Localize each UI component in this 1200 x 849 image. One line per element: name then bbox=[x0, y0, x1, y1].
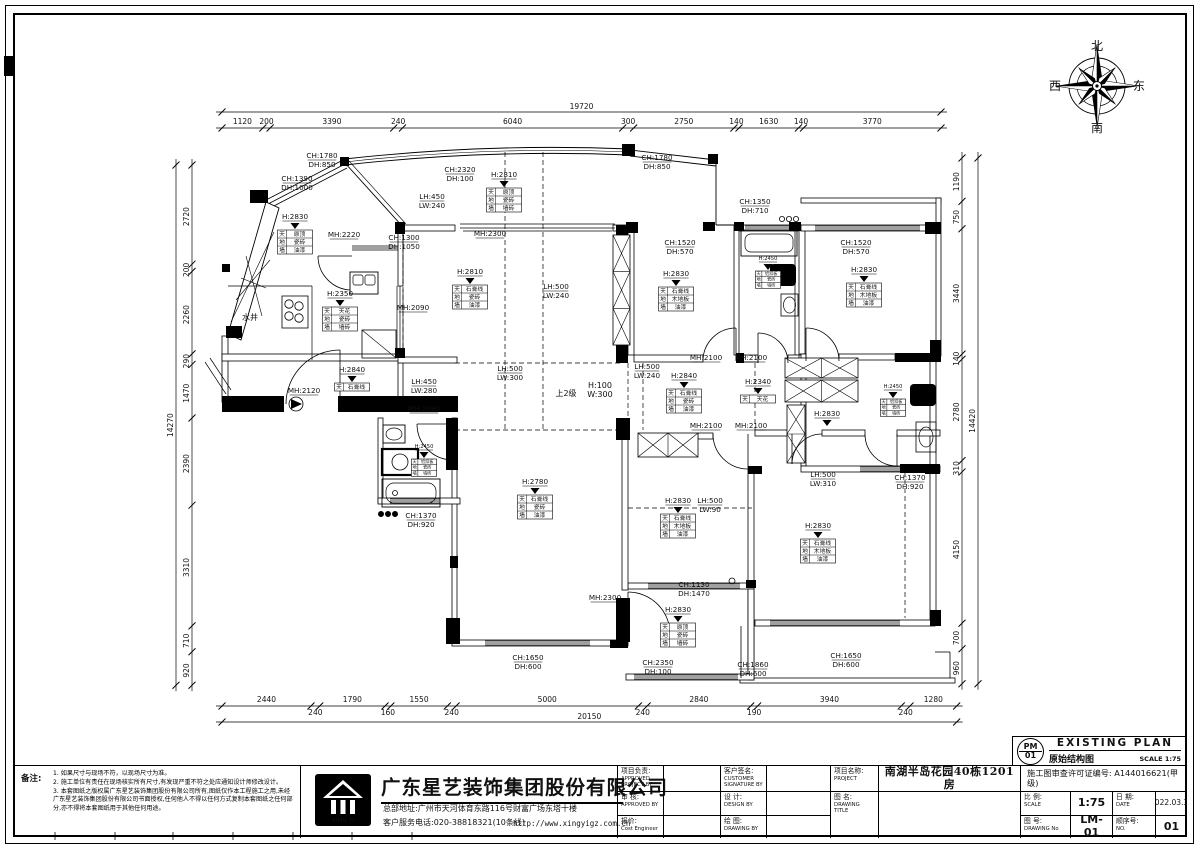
company-phone: 客户服务电话:020-38818321(10条线) bbox=[383, 817, 525, 828]
finish-value: 瓷砖 bbox=[677, 631, 689, 639]
plan-label: CH:1860 bbox=[737, 660, 769, 669]
plan-label: CH:1650 bbox=[512, 653, 544, 662]
dim-value: 920 bbox=[182, 663, 191, 678]
room-height-label: H:2450 bbox=[415, 444, 434, 450]
dim-value: 190 bbox=[747, 708, 762, 717]
room-height-label: H:2830 bbox=[814, 409, 841, 418]
dim-value: 2780 bbox=[952, 402, 961, 421]
dim-value: 310 bbox=[952, 461, 961, 476]
finish-key: 墙 bbox=[454, 301, 460, 309]
plan-label: DH:570 bbox=[842, 247, 870, 256]
dim-value: 3770 bbox=[863, 117, 882, 126]
field-scale: 比 例: SCALE bbox=[1020, 791, 1070, 815]
dim-value: 1190 bbox=[952, 172, 961, 191]
field-design-value bbox=[766, 791, 830, 815]
room-height-label: H:2840 bbox=[339, 365, 366, 374]
field-customer-value bbox=[766, 766, 830, 791]
field-cost-value bbox=[663, 815, 720, 838]
finish-key: 墙 bbox=[488, 204, 494, 212]
dim-total-left: 14270 bbox=[166, 413, 175, 437]
dim-value: 1630 bbox=[759, 117, 778, 126]
drawing-title-strip: PM 01 EXISTING PLAN 原始结构图 SCALE 1:75 bbox=[1012, 736, 1185, 765]
dim-value: 140 bbox=[729, 117, 744, 126]
finish-key: 墙 bbox=[324, 323, 330, 331]
dim-value: 1280 bbox=[924, 695, 943, 704]
plan-label: CH:1370 bbox=[894, 473, 926, 482]
finish-value: 瓷砖 bbox=[469, 293, 481, 301]
compass-e: 东 bbox=[1133, 79, 1145, 93]
finish-key: 天 bbox=[802, 540, 808, 547]
finish-value: 油漆 bbox=[683, 405, 695, 413]
finish-key: 地 bbox=[324, 315, 330, 323]
seq-no-value: 01 bbox=[1155, 815, 1187, 838]
finish-value: 原顶 bbox=[503, 189, 515, 196]
finish-key: 天 bbox=[279, 231, 285, 238]
plan-label: MH:2090 bbox=[397, 303, 430, 312]
dim-value: 1790 bbox=[343, 695, 362, 704]
dim-total-bottom: 20150 bbox=[577, 712, 601, 721]
finish-value: 石膏线 bbox=[680, 389, 698, 397]
plan-label: DH:850 bbox=[643, 162, 671, 171]
finish-value: 天花 bbox=[757, 395, 769, 403]
finish-key: 地 bbox=[413, 464, 417, 470]
plan-label: CH:1370 bbox=[405, 511, 437, 520]
finish-value: 油漆 bbox=[817, 555, 829, 563]
dim-value: 2390 bbox=[182, 454, 191, 473]
finish-key: 地 bbox=[660, 295, 666, 303]
dim-value: 960 bbox=[952, 661, 961, 676]
field-design: 设 计: DESIGN BY bbox=[720, 791, 766, 815]
plan-label: MH:2100 bbox=[735, 421, 768, 430]
finish-key: 天 bbox=[757, 271, 761, 276]
finish-value: 油漆 bbox=[675, 303, 687, 311]
plan-label: CH:1780 bbox=[641, 153, 673, 162]
finish-value: 瓷砖 bbox=[767, 276, 775, 282]
plan-label: DH:570 bbox=[666, 247, 694, 256]
finish-value: 瓷砖 bbox=[892, 404, 900, 410]
finish-value: 石膏线 bbox=[466, 285, 484, 293]
dim-value: 4150 bbox=[952, 540, 961, 559]
finish-key: 墙 bbox=[662, 530, 668, 538]
room-height-label: H:2830 bbox=[805, 521, 832, 530]
finish-value: 铝扣板 bbox=[890, 398, 902, 404]
company-name: 广东星艺装饰集团股份有限公司 bbox=[381, 771, 623, 804]
dim-value: 240 bbox=[391, 117, 406, 126]
dim-value: 2440 bbox=[257, 695, 276, 704]
finish-key: 地 bbox=[882, 404, 886, 410]
finish-value: 原顶 bbox=[677, 624, 689, 631]
field-date: 日 期: DATE bbox=[1112, 791, 1155, 815]
plan-label: DH:600 bbox=[832, 660, 860, 669]
plan-label: CH:2350 bbox=[642, 658, 674, 667]
dim-value: 3440 bbox=[952, 284, 961, 303]
field-draw-value bbox=[766, 815, 830, 838]
plan-label: LW:240 bbox=[419, 201, 446, 210]
field-drawing-no: 图 号: DRAWING No bbox=[1020, 815, 1070, 838]
field-project-name-label: 项目名称: PROJECT bbox=[830, 766, 878, 791]
finish-value: 瓷砖 bbox=[423, 464, 431, 470]
plan-label: DH:710 bbox=[741, 206, 769, 215]
plan-title-en: EXISTING PLAN bbox=[1049, 737, 1181, 751]
license-number: 施工图审查许可证编号: A144016621(甲级) bbox=[1020, 766, 1187, 791]
finish-value: 石膏线 bbox=[672, 287, 690, 295]
plan-label: CH:1300 bbox=[388, 233, 420, 242]
finish-key: 墙 bbox=[662, 639, 668, 647]
room-height-label: H:2840 bbox=[671, 371, 698, 380]
finish-key: 墙 bbox=[279, 246, 285, 254]
floor-plan-svg: 1120200339024060403002750140163014037701… bbox=[0, 0, 1200, 849]
finish-value: 石膏线 bbox=[860, 283, 878, 291]
plan-label: LW:310 bbox=[810, 479, 837, 488]
plan-label: H:100 bbox=[588, 381, 612, 390]
dim-value: 200 bbox=[182, 262, 191, 277]
plan-label: LW:90 bbox=[699, 505, 721, 514]
dim-value: 6040 bbox=[503, 117, 522, 126]
finish-key: 墙 bbox=[848, 299, 854, 307]
plan-label: LH:450 bbox=[411, 377, 437, 386]
plan-label: MH:2100 bbox=[735, 353, 768, 362]
finish-value: 木地板 bbox=[814, 547, 832, 555]
room-height-label: H:2830 bbox=[663, 269, 690, 278]
room-height-label: H:2830 bbox=[665, 496, 692, 505]
field-check: 审 核: APPROVED BY bbox=[617, 791, 663, 815]
field-check-value bbox=[663, 791, 720, 815]
plan-scale: SCALE 1:75 bbox=[1140, 755, 1182, 763]
plan-label: LH:500 bbox=[810, 470, 836, 479]
field-draw: 绘 图: DRAWING BY bbox=[720, 815, 766, 838]
room-height-label: H:2340 bbox=[745, 377, 772, 386]
field-seq-no: 顺序号: NO. bbox=[1112, 815, 1155, 838]
dim-value: 3940 bbox=[820, 695, 839, 704]
plan-label: CH:1350 bbox=[739, 197, 771, 206]
finish-key: 天 bbox=[742, 396, 748, 403]
finish-key: 天 bbox=[488, 189, 494, 196]
finish-key: 墙 bbox=[660, 303, 666, 311]
logo-caption: XING YI bbox=[332, 817, 355, 824]
dim-value: 2750 bbox=[674, 117, 693, 126]
finish-key: 地 bbox=[488, 196, 494, 204]
dim-value: 140 bbox=[794, 117, 809, 126]
plan-label: DH:850 bbox=[308, 160, 336, 169]
dim-value: 160 bbox=[381, 708, 396, 717]
finish-value: 墙砖 bbox=[503, 204, 515, 212]
finish-key: 天 bbox=[660, 288, 666, 295]
finish-key: 墙 bbox=[757, 281, 761, 287]
room-height-label: H:2780 bbox=[522, 477, 549, 486]
plan-label: DH:1470 bbox=[678, 589, 710, 598]
finish-value: 瓷砖 bbox=[683, 397, 695, 405]
plan-label: LW:280 bbox=[411, 386, 438, 395]
finish-value: 木地板 bbox=[860, 291, 878, 299]
finish-value: 木地板 bbox=[674, 522, 692, 530]
notes-title: 备注: bbox=[21, 772, 41, 784]
plan-label: MH:2300 bbox=[589, 593, 622, 602]
finish-value: 油漆 bbox=[534, 511, 546, 519]
dim-value: 290 bbox=[182, 354, 191, 369]
dim-value: 240 bbox=[308, 708, 323, 717]
plan-label: CH:1520 bbox=[664, 238, 696, 247]
compass-s: 南 bbox=[1091, 120, 1103, 135]
finish-value: 油漆 bbox=[677, 530, 689, 538]
plan-label: MH:2100 bbox=[690, 353, 723, 362]
dim-value: 750 bbox=[952, 210, 961, 225]
finish-key: 地 bbox=[519, 503, 525, 511]
finish-value: 石膏线 bbox=[814, 539, 832, 547]
drawing-title-value bbox=[878, 791, 1020, 838]
dim-value: 1120 bbox=[233, 117, 252, 126]
plan-label: MH:2300 bbox=[474, 229, 507, 238]
dim-value: 710 bbox=[182, 633, 191, 648]
plan-label: CH:1390 bbox=[281, 174, 313, 183]
finish-key: 天 bbox=[336, 384, 342, 391]
finish-key: 天 bbox=[413, 459, 417, 464]
plan-label: LW:300 bbox=[497, 373, 524, 382]
finish-key: 墙 bbox=[802, 555, 808, 563]
room-height-label: H:2450 bbox=[759, 256, 778, 262]
finish-value: 石膏线 bbox=[348, 383, 366, 391]
finish-key: 墙 bbox=[668, 405, 674, 413]
plan-label: DH:600 bbox=[514, 662, 542, 671]
plan-label: MH:2120 bbox=[288, 386, 321, 395]
plan-label: CH:1520 bbox=[840, 238, 872, 247]
drawing-sheet: 1120200339024060403002750140163014037701… bbox=[0, 0, 1200, 849]
finish-key: 地 bbox=[668, 397, 674, 405]
company-logo: XING YI bbox=[315, 774, 371, 826]
plan-label: 上2级 bbox=[555, 388, 576, 398]
finish-key: 天 bbox=[848, 284, 854, 291]
field-project-lead-value bbox=[663, 766, 720, 791]
dim-value: 700 bbox=[952, 631, 961, 646]
dim-total-top: 19720 bbox=[570, 102, 594, 111]
detail-reference-symbol: PM 01 bbox=[1017, 738, 1044, 765]
plan-label: CH:2320 bbox=[444, 165, 476, 174]
plan-label: LH:500 bbox=[634, 362, 660, 371]
dim-value: 300 bbox=[621, 117, 636, 126]
field-customer: 客户签名: CUSTOMER SIGNATURE BY bbox=[720, 766, 766, 791]
dim-value: 200 bbox=[259, 117, 274, 126]
room-height-label: H:2810 bbox=[491, 170, 518, 179]
finish-value: 墙砖 bbox=[677, 639, 689, 647]
finish-key: 地 bbox=[802, 547, 808, 555]
plan-label: MH:2090 bbox=[408, 404, 441, 413]
dim-value: 2260 bbox=[182, 305, 191, 324]
plan-label: DH:920 bbox=[896, 482, 924, 491]
drawing-no-value: LM-01 bbox=[1070, 815, 1112, 838]
finish-key: 地 bbox=[662, 522, 668, 530]
date-value: 2022.03.31 bbox=[1155, 791, 1187, 815]
note-item: 3. 本套图纸之版权属广东星艺装饰集团股份有限公司所有,图纸仅作本工程施工之用,… bbox=[53, 788, 294, 814]
compass-n: 北 bbox=[1091, 39, 1103, 53]
detail-ref-code: PM bbox=[1024, 743, 1038, 751]
plan-label: CH:1780 bbox=[306, 151, 338, 160]
note-item: 1. 如果尺寸与现场不符，以现场尺寸为准。 bbox=[53, 770, 294, 779]
room-height-label: H:2810 bbox=[457, 267, 484, 276]
room-height-label: H:2830 bbox=[282, 212, 309, 221]
finish-value: 石膏线 bbox=[674, 514, 692, 522]
dim-value: 3310 bbox=[182, 558, 191, 577]
dim-value: 240 bbox=[636, 708, 651, 717]
plan-label: LW:240 bbox=[634, 371, 661, 380]
dim-value: 240 bbox=[445, 708, 460, 717]
dim-value: 140 bbox=[952, 351, 961, 366]
finish-value: 油漆 bbox=[469, 301, 481, 309]
finish-value: 石膏线 bbox=[531, 495, 549, 503]
finish-key: 天 bbox=[324, 308, 330, 315]
finish-value: 瓷砖 bbox=[503, 196, 515, 204]
finish-key: 天 bbox=[519, 496, 525, 503]
dim-value: 1550 bbox=[410, 695, 429, 704]
finish-key: 地 bbox=[454, 293, 460, 301]
finish-value: 瓷砖 bbox=[534, 503, 546, 511]
plan-label: DH:600 bbox=[739, 669, 767, 678]
field-project-lead: 项目负责: APPROVED PROJECT BY bbox=[617, 766, 663, 791]
notes-section: 备注: 1. 如果尺寸与现场不符，以现场尺寸为准。 2. 施工单位有责任在现场核… bbox=[13, 766, 300, 838]
dim-total-right: 14420 bbox=[968, 409, 977, 433]
plan-label: DH:100 bbox=[644, 667, 672, 676]
finish-value: 原顶 bbox=[294, 231, 306, 238]
note-item: 2. 施工单位有责任在现场核实所有尺寸,有发现严重不符之处应通知设计师修改设计。 bbox=[53, 779, 294, 788]
finish-value: 墙砖 bbox=[423, 469, 431, 475]
finish-value: 墙砖 bbox=[892, 409, 900, 415]
finish-key: 地 bbox=[662, 631, 668, 639]
finish-key: 地 bbox=[279, 238, 285, 246]
dim-value: 1470 bbox=[182, 383, 191, 402]
plan-label: CH:1650 bbox=[830, 651, 862, 660]
company-website: http://www.xingyigz.com.cn bbox=[513, 819, 630, 828]
finish-key: 天 bbox=[668, 390, 674, 397]
finish-key: 墙 bbox=[413, 469, 417, 475]
plan-label: DH:920 bbox=[407, 520, 435, 529]
plan-label: DH:100 bbox=[446, 174, 474, 183]
company-section: XING YI 广东星艺装饰集团股份有限公司 总部地址:广州市天河体育东路116… bbox=[300, 766, 631, 838]
field-drawing-title-label: 图 名: DRAWING TITLE bbox=[830, 791, 878, 838]
finish-key: 天 bbox=[662, 624, 668, 631]
finish-key: 天 bbox=[882, 399, 886, 404]
dim-value: 2720 bbox=[182, 207, 191, 226]
plan-title-cn: 原始结构图 bbox=[1049, 752, 1094, 765]
project-name-value: 南湖半岛花园40栋1201房 bbox=[878, 766, 1020, 791]
room-height-label: H:2450 bbox=[884, 384, 903, 390]
plan-label: LH:450 bbox=[419, 192, 445, 201]
plan-label: DH:1050 bbox=[388, 242, 420, 251]
compass-rose: 北南西东 bbox=[1049, 39, 1145, 135]
company-address: 总部地址:广州市天河体育东路116号财富广场东塔十楼 bbox=[383, 803, 577, 814]
finish-key: 墙 bbox=[882, 409, 886, 415]
dim-value: 240 bbox=[898, 708, 913, 717]
finish-value: 墙砖 bbox=[339, 323, 351, 331]
compass-w: 西 bbox=[1049, 79, 1061, 93]
plan-label: W:300 bbox=[587, 390, 612, 399]
room-height-label: H:2830 bbox=[665, 605, 692, 614]
detail-ref-sheet: 01 bbox=[1019, 751, 1042, 760]
scale-value: 1:75 bbox=[1070, 791, 1112, 815]
dim-value: 3390 bbox=[322, 117, 341, 126]
finish-value: 铝扣板 bbox=[421, 458, 433, 464]
plan-label: CH:1130 bbox=[678, 580, 710, 589]
finish-value: 油漆 bbox=[294, 246, 306, 254]
room-height-label: H:2350 bbox=[327, 289, 354, 298]
plan-label: LH:500 bbox=[697, 496, 723, 505]
plan-label: DH:1000 bbox=[281, 183, 313, 192]
plan-label: 水井 bbox=[242, 312, 258, 322]
plan-label: LH:500 bbox=[543, 282, 569, 291]
plan-label: LW:240 bbox=[543, 291, 570, 300]
finish-value: 天花 bbox=[339, 307, 351, 315]
finish-key: 天 bbox=[662, 515, 668, 522]
finish-value: 瓷砖 bbox=[339, 315, 351, 323]
dim-value: 5000 bbox=[538, 695, 557, 704]
finish-value: 瓷砖 bbox=[294, 238, 306, 246]
room-height-label: H:2830 bbox=[851, 265, 878, 274]
finish-value: 油漆 bbox=[863, 299, 875, 307]
dim-value: 2840 bbox=[689, 695, 708, 704]
plan-label: MH:2220 bbox=[328, 230, 361, 239]
finish-key: 地 bbox=[848, 291, 854, 299]
finish-key: 天 bbox=[454, 286, 460, 293]
finish-key: 墙 bbox=[519, 511, 525, 519]
finish-value: 铝扣板 bbox=[765, 270, 777, 276]
finish-value: 木地板 bbox=[672, 295, 690, 303]
title-block: 备注: 1. 如果尺寸与现场不符，以现场尺寸为准。 2. 施工单位有责任在现场核… bbox=[13, 765, 1187, 837]
finish-key: 地 bbox=[757, 276, 761, 282]
plan-label: MH:2100 bbox=[690, 421, 723, 430]
finish-value: 墙砖 bbox=[767, 281, 775, 287]
plan-label: LH:500 bbox=[497, 364, 523, 373]
field-cost: 报价: Cost Engineer bbox=[617, 815, 663, 838]
